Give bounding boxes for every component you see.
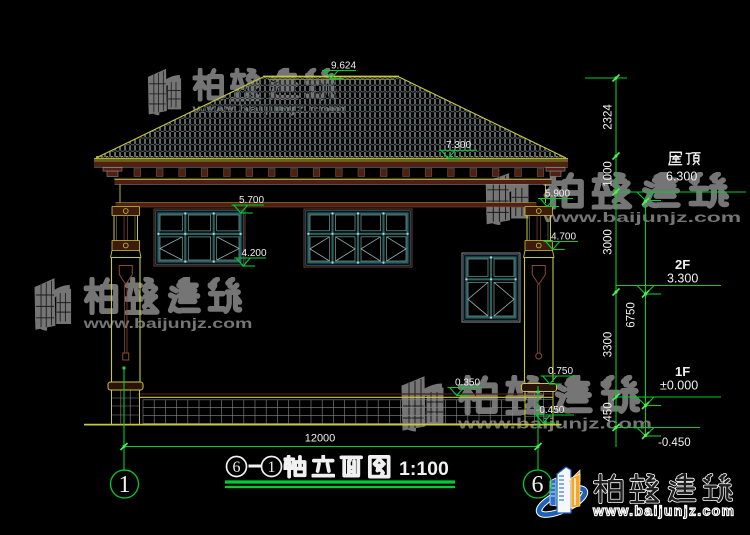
- svg-text:6: 6: [532, 472, 544, 498]
- svg-text:-0.450: -0.450: [658, 437, 691, 449]
- svg-text:9.624: 9.624: [331, 61, 356, 72]
- svg-text:3000: 3000: [603, 229, 615, 255]
- svg-text:1F: 1F: [675, 364, 690, 379]
- svg-text:3.300: 3.300: [667, 272, 698, 286]
- svg-text:www.baijunjz.com: www.baijunjz.com: [592, 503, 734, 519]
- svg-text:1000: 1000: [603, 161, 615, 187]
- svg-text:450: 450: [603, 402, 615, 421]
- svg-text:5.700: 5.700: [239, 195, 264, 206]
- svg-text:0.750: 0.750: [548, 366, 573, 377]
- svg-text:7.300: 7.300: [446, 140, 471, 151]
- svg-text:4.700: 4.700: [551, 232, 576, 243]
- svg-text:±0.000: ±0.000: [660, 379, 698, 393]
- svg-text:4.200: 4.200: [242, 248, 267, 259]
- svg-text:1: 1: [119, 472, 131, 498]
- svg-text:6: 6: [233, 459, 241, 476]
- svg-text:-0.450: -0.450: [536, 405, 565, 416]
- svg-text:6.300: 6.300: [666, 170, 697, 184]
- svg-text:1: 1: [268, 459, 276, 476]
- svg-text:1:100: 1:100: [399, 458, 449, 480]
- svg-text:12000: 12000: [305, 433, 336, 445]
- svg-text:0.350: 0.350: [455, 378, 480, 389]
- svg-text:5.900: 5.900: [545, 189, 570, 200]
- svg-text:2F: 2F: [675, 257, 690, 272]
- svg-text:6750: 6750: [626, 302, 638, 328]
- svg-text:3300: 3300: [603, 332, 615, 358]
- svg-text:2324: 2324: [603, 104, 615, 130]
